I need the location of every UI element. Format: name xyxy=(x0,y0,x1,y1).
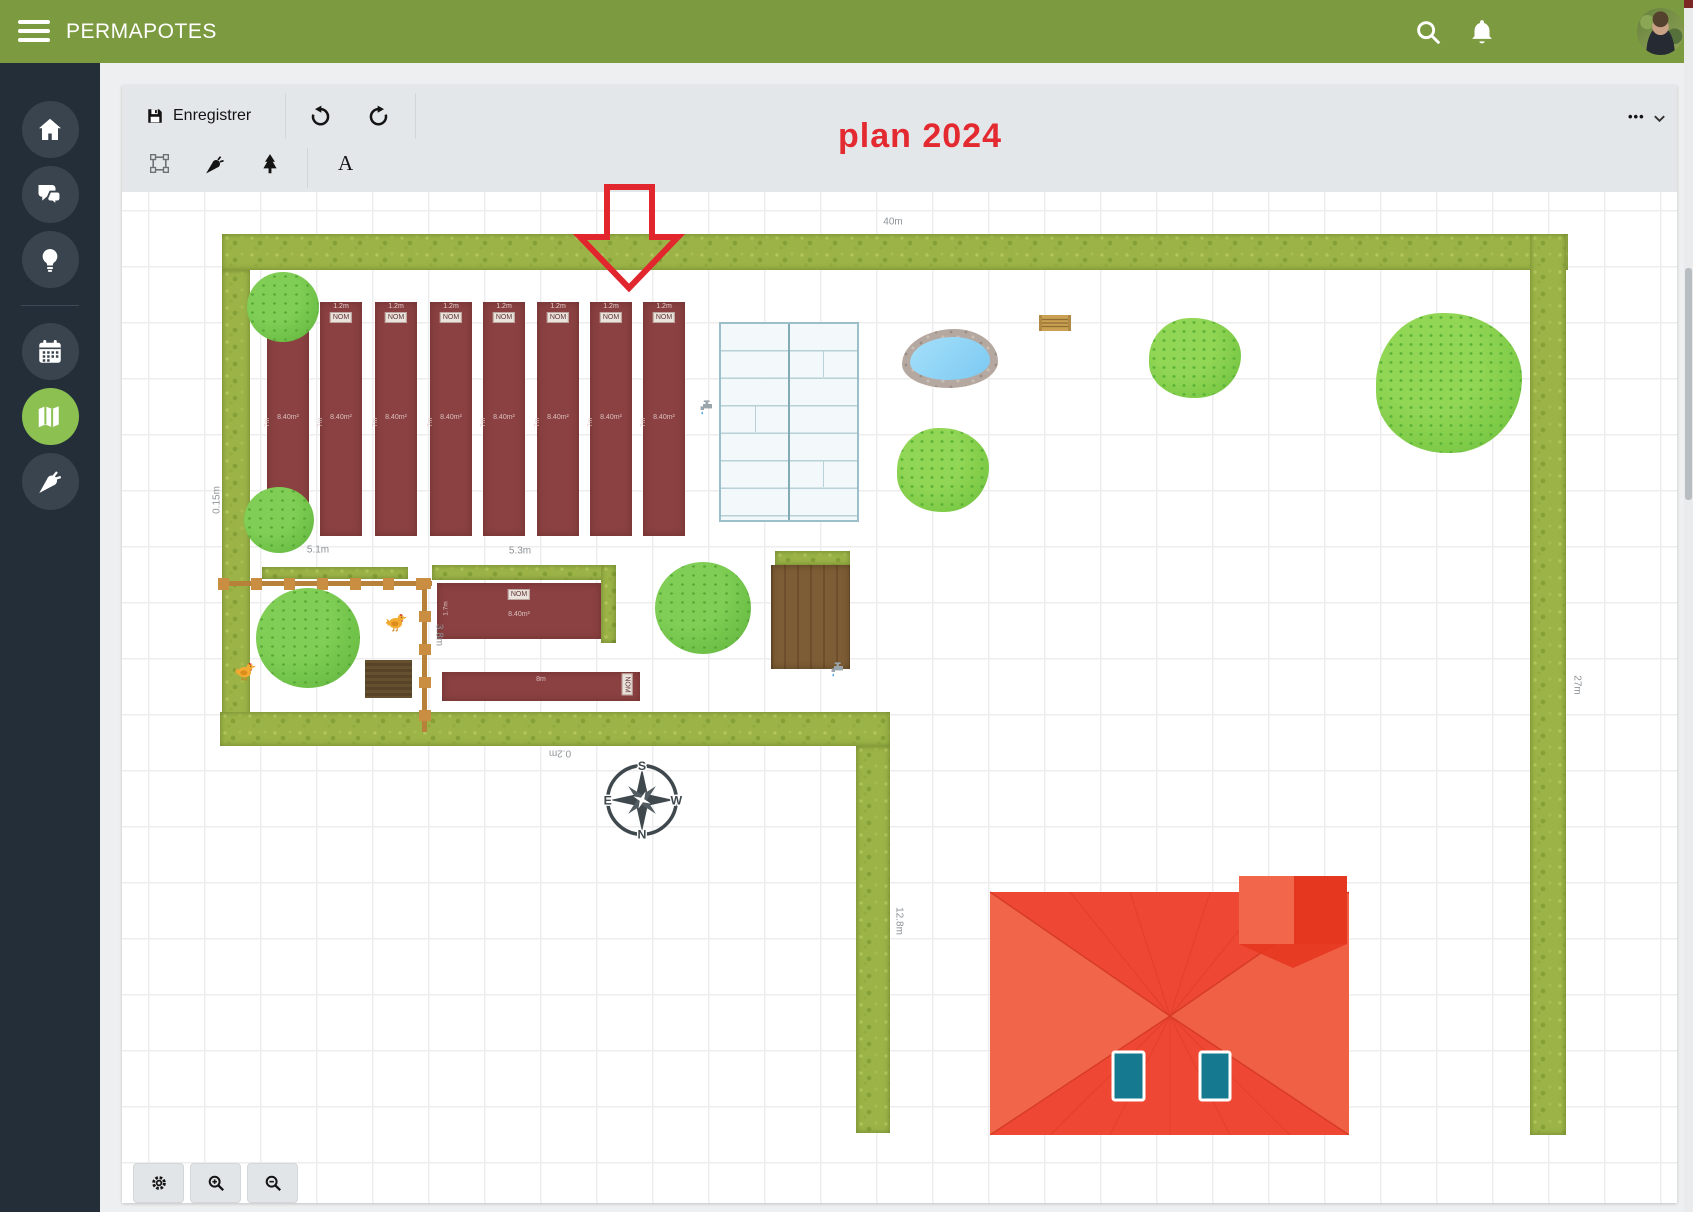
save-button[interactable]: Enregistrer xyxy=(146,98,251,134)
bed-width-label: 1.2m xyxy=(537,303,579,310)
chicken-icon xyxy=(384,612,408,634)
dimension-label: 12.8m xyxy=(894,907,905,935)
zoom-in-button[interactable] xyxy=(190,1163,241,1203)
save-icon xyxy=(146,107,164,125)
compass-west: W xyxy=(671,793,683,807)
pond-water xyxy=(910,337,990,380)
undo-button[interactable] xyxy=(309,105,332,128)
scrollbar-cap xyxy=(1684,0,1693,8)
bed-name-badge: NOM xyxy=(600,312,622,323)
sidebar-item-garden[interactable] xyxy=(22,453,79,510)
bed-area-label: 8.40m² xyxy=(375,414,417,421)
bed-name-badge: NOM xyxy=(621,673,632,695)
bed-width-label: 1.2m xyxy=(483,303,525,310)
garden-bed[interactable]: 1.2mNOM7m8.40m² xyxy=(320,302,362,536)
skylight-window xyxy=(1200,1052,1230,1100)
bell-icon xyxy=(1467,17,1497,47)
carrot-icon xyxy=(35,467,65,497)
bed-name-badge: NOM xyxy=(440,312,462,323)
chicken-icon xyxy=(233,661,257,683)
hedge[interactable] xyxy=(775,551,850,565)
bed-area-label: 8.40m² xyxy=(590,414,632,421)
compass-south: S xyxy=(638,759,646,773)
house[interactable] xyxy=(990,876,1349,1140)
compass-north: N xyxy=(638,828,647,842)
hedge[interactable] xyxy=(1530,234,1566,1135)
bed-width-label: 1.2m xyxy=(590,303,632,310)
tree[interactable] xyxy=(247,272,319,342)
bench[interactable] xyxy=(1038,313,1072,338)
greenhouse-partition xyxy=(823,351,824,377)
map-icon xyxy=(35,402,65,432)
bed-area-label: 8.40m² xyxy=(483,414,525,421)
bed-name-badge: NOM xyxy=(547,312,569,323)
bush[interactable] xyxy=(897,428,989,512)
frame-tool-button[interactable] xyxy=(149,153,170,174)
user-avatar[interactable] xyxy=(1637,8,1684,55)
toolbar-divider xyxy=(307,148,308,188)
water-tap[interactable] xyxy=(699,400,715,423)
compass-rose[interactable]: S W N E xyxy=(598,756,686,849)
carrot-tool-button[interactable] xyxy=(203,153,225,175)
home-icon xyxy=(35,115,65,145)
hedge[interactable] xyxy=(220,712,890,746)
sidebar-divider xyxy=(21,305,79,306)
bench-icon xyxy=(1038,313,1072,333)
garden-bed[interactable]: NOM 8.40m² 1.7m xyxy=(437,583,601,639)
dimension-label: 27m xyxy=(1572,675,1583,694)
dimension-label: 40m xyxy=(883,217,902,228)
gear-icon xyxy=(150,1174,168,1192)
bed-name-badge: NOM xyxy=(385,312,407,323)
bed-length-label: 1.7m xyxy=(443,601,450,615)
lightbulb-icon xyxy=(35,245,65,275)
text-tool-button[interactable]: A xyxy=(338,151,353,176)
sidebar-item-community[interactable] xyxy=(22,166,79,223)
water-tap[interactable] xyxy=(830,662,846,685)
sidebar-item-calendar[interactable] xyxy=(22,323,79,380)
garden-bed[interactable]: 1.2mNOM7m8.40m² xyxy=(537,302,579,536)
bed-area-label: 8.40m² xyxy=(437,611,601,618)
garden-bed[interactable]: 1.2mNOM7m8.40m² xyxy=(375,302,417,536)
garden-bed[interactable]: 1.2mNOM7m8.40m² xyxy=(483,302,525,536)
greenhouse-partition xyxy=(755,406,756,432)
dimension-label: 0.15m xyxy=(212,486,223,514)
chicken[interactable] xyxy=(233,661,257,688)
undo-icon xyxy=(309,105,332,128)
bed-area-label: 8.40m² xyxy=(430,414,472,421)
search-button[interactable] xyxy=(1413,17,1443,47)
tree[interactable] xyxy=(1376,313,1522,453)
bed-area-label: 8.40m² xyxy=(537,414,579,421)
zoom-out-icon xyxy=(264,1174,282,1192)
dimension-label: 5.1m xyxy=(307,545,329,556)
calendar-icon xyxy=(35,337,65,367)
garden-bed[interactable]: 1.2mNOM7m8.40m² xyxy=(590,302,632,536)
app-header: PERMAPOTES xyxy=(0,0,1693,63)
garden-bed[interactable]: 8m NOM xyxy=(442,672,640,701)
carrot-icon xyxy=(203,153,225,175)
dimension-label: 3.8m xyxy=(434,624,445,646)
greenhouse[interactable] xyxy=(719,322,859,522)
bed-name-badge: NOM xyxy=(493,312,515,323)
chicken[interactable] xyxy=(384,612,408,639)
frame-icon xyxy=(149,153,170,174)
sidebar-item-ideas[interactable] xyxy=(22,231,79,288)
redo-icon xyxy=(367,105,390,128)
hedge[interactable] xyxy=(601,565,616,643)
bed-name-badge: NOM xyxy=(330,312,352,323)
skylight-window xyxy=(1113,1052,1144,1100)
dirt-patch[interactable] xyxy=(365,660,412,698)
collapse-toolbar-button[interactable] xyxy=(1652,111,1667,126)
bed-width-label: 1.2m xyxy=(320,303,362,310)
toolbar-divider xyxy=(285,93,286,139)
tree[interactable] xyxy=(256,588,360,688)
sidebar xyxy=(0,63,100,1212)
tree[interactable] xyxy=(655,562,751,654)
bed-name-badge: NOM xyxy=(508,589,530,600)
save-label: Enregistrer xyxy=(173,107,251,125)
search-icon xyxy=(1413,17,1443,47)
zoom-out-button[interactable] xyxy=(247,1163,298,1203)
plan-title-annotation[interactable]: plan 2024 xyxy=(838,117,1002,156)
bush[interactable] xyxy=(1149,318,1241,398)
sidebar-item-home[interactable] xyxy=(22,101,79,158)
page-scrollbar[interactable] xyxy=(1684,0,1693,1212)
scrollbar-thumb[interactable] xyxy=(1685,268,1692,500)
app-title: PERMAPOTES xyxy=(66,20,217,44)
dimension-label: 0.2m xyxy=(549,748,571,759)
fence[interactable] xyxy=(218,578,432,590)
bed-name-badge: NOM xyxy=(653,312,675,323)
bed-width-label: 1.2m xyxy=(643,303,685,310)
chevron-down-icon xyxy=(1652,111,1667,126)
settings-button[interactable] xyxy=(133,1163,184,1203)
sidebar-item-plan[interactable] xyxy=(22,388,79,445)
chat-icon xyxy=(35,180,65,210)
tree[interactable] xyxy=(244,487,314,553)
bed-area-label: 8.40m² xyxy=(320,414,362,421)
bed-area-label: 8.40m² xyxy=(643,414,685,421)
plan-editor-card: Enregistrer A ••• xyxy=(122,85,1677,1203)
arrow-annotation[interactable] xyxy=(572,181,686,300)
bed-area-label: 8m xyxy=(442,676,640,683)
garden-bed[interactable]: 1.2mNOM7m8.40m² xyxy=(643,302,685,536)
toolbar-divider xyxy=(415,93,416,139)
fence[interactable] xyxy=(419,578,431,732)
more-options-button[interactable]: ••• xyxy=(1628,109,1645,124)
bed-area-label: 8.40m² xyxy=(267,414,309,421)
plan-canvas[interactable]: 1.2mNOM7m8.40m²1.2mNOM7m8.40m²1.2mNOM7m8… xyxy=(122,192,1677,1203)
redo-button[interactable] xyxy=(367,105,390,128)
tap-icon xyxy=(830,662,846,680)
pond[interactable] xyxy=(902,329,998,388)
greenhouse-partition xyxy=(823,461,824,487)
canvas-controls xyxy=(133,1163,298,1203)
tap-icon xyxy=(699,400,715,418)
hedge[interactable] xyxy=(222,234,1568,270)
menu-button[interactable] xyxy=(18,20,52,44)
bed-width-label: 1.2m xyxy=(430,303,472,310)
garden-bed[interactable]: 1.2mNOM7m8.40m² xyxy=(430,302,472,536)
wood-shed[interactable] xyxy=(771,565,850,669)
dimension-label: 5.3m xyxy=(509,546,531,557)
hedge[interactable] xyxy=(432,565,614,580)
down-arrow-icon xyxy=(572,181,686,295)
tree-tool-button[interactable] xyxy=(259,153,281,175)
compass-east: E xyxy=(604,793,612,807)
tree-icon xyxy=(259,153,281,175)
bed-width-label: 1.2m xyxy=(375,303,417,310)
zoom-in-icon xyxy=(207,1174,225,1192)
notifications-button[interactable] xyxy=(1467,17,1497,47)
hedge[interactable] xyxy=(856,746,890,1133)
